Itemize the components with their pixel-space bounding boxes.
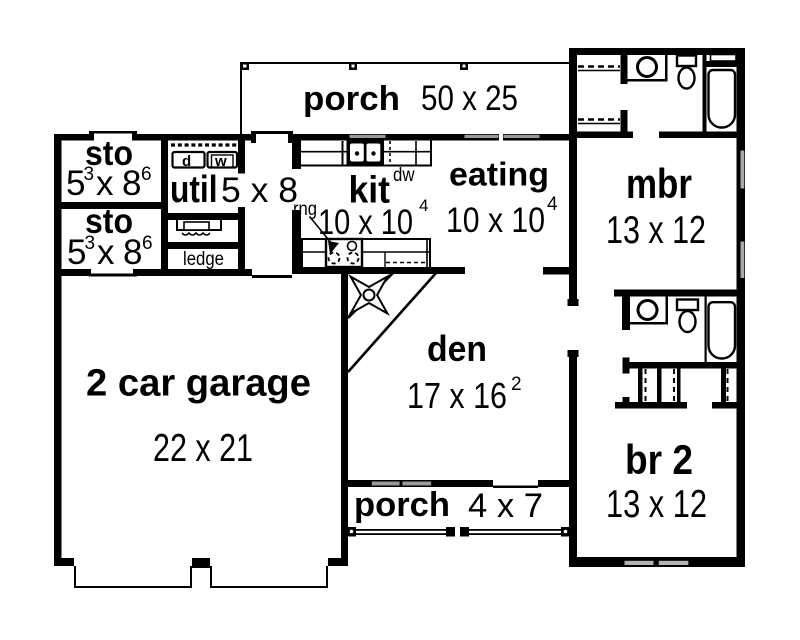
svg-text:ledge: ledge xyxy=(183,249,224,270)
svg-text:rng: rng xyxy=(293,199,317,220)
svg-text:17 x 16: 17 x 16 xyxy=(407,375,507,416)
svg-text:53x86: 53x86 xyxy=(66,164,152,203)
svg-text:porch: porch xyxy=(354,486,450,524)
svg-text:50 x 25: 50 x 25 xyxy=(421,79,518,118)
svg-text:4 x 7: 4 x 7 xyxy=(468,487,543,525)
svg-text:w: w xyxy=(214,153,227,170)
svg-text:2 car garage: 2 car garage xyxy=(86,363,311,405)
svg-text:mbr: mbr xyxy=(626,160,692,207)
svg-text:53x86: 53x86 xyxy=(67,233,153,272)
svg-text:den: den xyxy=(427,328,487,369)
svg-text:eating: eating xyxy=(449,156,549,193)
svg-text:4: 4 xyxy=(547,194,558,215)
svg-text:2: 2 xyxy=(511,374,522,395)
svg-text:10 x 10: 10 x 10 xyxy=(446,201,545,240)
svg-text:22 x 21: 22 x 21 xyxy=(153,427,253,470)
svg-text:porch: porch xyxy=(303,80,400,118)
svg-text:10 x 10: 10 x 10 xyxy=(318,203,413,242)
svg-text:5 x 8: 5 x 8 xyxy=(221,171,298,210)
svg-text:13 x 12: 13 x 12 xyxy=(606,483,707,526)
svg-text:13 x 12: 13 x 12 xyxy=(606,209,706,252)
svg-text:br 2: br 2 xyxy=(625,436,693,483)
svg-text:dw: dw xyxy=(393,165,415,186)
svg-text:util: util xyxy=(170,169,218,211)
svg-text:d: d xyxy=(182,153,191,170)
svg-text:4: 4 xyxy=(419,196,428,215)
